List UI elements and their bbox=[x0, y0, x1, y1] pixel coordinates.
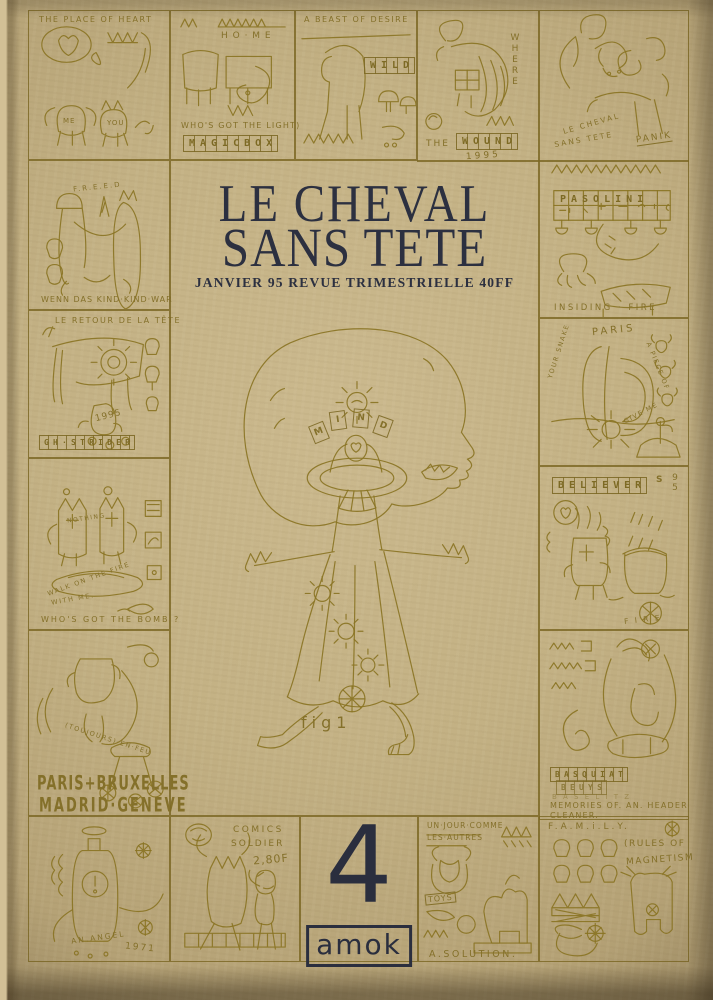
panel-title: A BEAST OF DESIRE bbox=[304, 15, 409, 24]
panel-paris-snake: PARIS YOUR SNAKE A PIECE OF GIVE ME bbox=[539, 318, 689, 466]
comics-line1: COMICS bbox=[233, 825, 284, 835]
panel-title: THE PLACE OF HEART bbox=[39, 15, 152, 24]
panel-comics-soldier: COMICS SOLDIER 2,80F bbox=[170, 816, 300, 962]
pasolini-caption: INSIDING · FIRE bbox=[554, 303, 657, 313]
panel-memories: BASQUIAT BEUYS B A S E L I T Z MEMORIES … bbox=[539, 630, 689, 820]
panel-pasolini: PASOLINI INSIDING · FIRE bbox=[539, 160, 689, 318]
bomb-drawing bbox=[29, 459, 169, 629]
retour-title: LE RETOUR DE LA TÊTE bbox=[55, 316, 181, 325]
panel-cities: (TOUJOURS)·EN·FEU PARIS+BRUXELLES MADRID… bbox=[28, 630, 170, 816]
solution-line1: UN·JOUR·COMME bbox=[427, 821, 504, 830]
pasolini-letters: PASOLINI bbox=[555, 192, 648, 207]
solution-caption: A.SOLUTION. bbox=[429, 949, 517, 960]
the-label: THE bbox=[426, 139, 450, 149]
magicbox-letterbox: MAGICBOX bbox=[183, 135, 278, 152]
cities-line2: MADRID·GENEVE bbox=[39, 795, 188, 818]
panel-the-wound: WHERE THE WOUND 1995 bbox=[417, 10, 539, 162]
panel-home: H O · M E WHO'S GOT THE LIGHT) MAGICBOX bbox=[170, 10, 295, 160]
panel-title: H O · M E bbox=[221, 31, 272, 41]
panel-believers: BELIEVER S 95 F I R E bbox=[539, 466, 689, 630]
panel-issue-number: 4 amok bbox=[300, 816, 418, 962]
family-title: F.A.M.i.L.Y. bbox=[548, 822, 630, 832]
panel-freed: F.R.E.E.D WENN DAS KIND·KIND·WAR bbox=[28, 160, 170, 310]
issue-number: 4 bbox=[301, 813, 417, 919]
panel-retour: LE RETOUR DE LA TÊTE 1995 GH·STRIDER bbox=[28, 310, 170, 458]
central-figure-drawing bbox=[171, 161, 538, 815]
place-of-heart-drawing bbox=[29, 11, 169, 159]
baselitz-row: B A S E L I T Z bbox=[552, 793, 631, 801]
magazine-cover: THE PLACE OF HEART ME YOU H O · M E WHO'… bbox=[0, 0, 713, 1000]
mind-letter-i: I bbox=[329, 410, 347, 431]
wild-letterbox: WILD bbox=[364, 57, 415, 74]
panel-place-of-heart: THE PLACE OF HEART ME YOU bbox=[28, 10, 170, 160]
believers-letterbox: BELIEVER bbox=[552, 477, 647, 494]
believers-tail: S bbox=[656, 475, 662, 485]
comics-line2: SOLDIER bbox=[231, 839, 284, 849]
memories-caption1: MEMORIES OF. AN. HEADER bbox=[550, 801, 688, 810]
believers-year: 95 bbox=[670, 473, 680, 493]
panel-center: LE CHEVAL SANS TETE JANVIER 95 REVUE TRI… bbox=[170, 160, 539, 816]
pasolini-drawing bbox=[540, 161, 688, 317]
where-label: WHERE bbox=[510, 33, 520, 88]
panel-angel: AN.ANGEL 1971 bbox=[28, 816, 170, 962]
publisher-logo: amok bbox=[306, 925, 412, 967]
wound-letterbox: WOUND bbox=[456, 133, 518, 150]
panel-beast-of-desire: A BEAST OF DESIRE WILD bbox=[295, 10, 417, 160]
freed-caption: WENN DAS KIND·KIND·WAR bbox=[41, 295, 173, 304]
label-you: YOU bbox=[107, 119, 125, 127]
panel-panik: LE CHEVAL SANS TETE PANIK bbox=[539, 10, 689, 162]
mind-letter-n: N bbox=[352, 408, 370, 428]
cities-line1: PARIS+BRUXELLES bbox=[37, 773, 190, 796]
beast-drawing bbox=[296, 11, 416, 159]
panel-family: F.A.M.i.L.Y. (RULES OF MAGNETISM bbox=[539, 816, 689, 962]
panel-bomb: NOTHING WALK ON THE FIRE WITH ME. WHO'S … bbox=[28, 458, 170, 630]
figure-caption: fig1 bbox=[301, 713, 351, 732]
solution-line2: LES·AUTRES bbox=[427, 833, 483, 842]
panel-caption: WHO'S GOT THE LIGHT) bbox=[181, 121, 301, 130]
label-me: ME bbox=[63, 117, 75, 125]
family-caption1: (RULES OF bbox=[624, 839, 685, 849]
bomb-caption: WHO'S GOT THE BOMB ? bbox=[41, 615, 180, 624]
panel-solution: UN·JOUR·COMME LES·AUTRES TOYS A.SOLUTION… bbox=[418, 816, 539, 962]
ghostrider-letterbox: GH·STRIDER bbox=[39, 435, 135, 450]
